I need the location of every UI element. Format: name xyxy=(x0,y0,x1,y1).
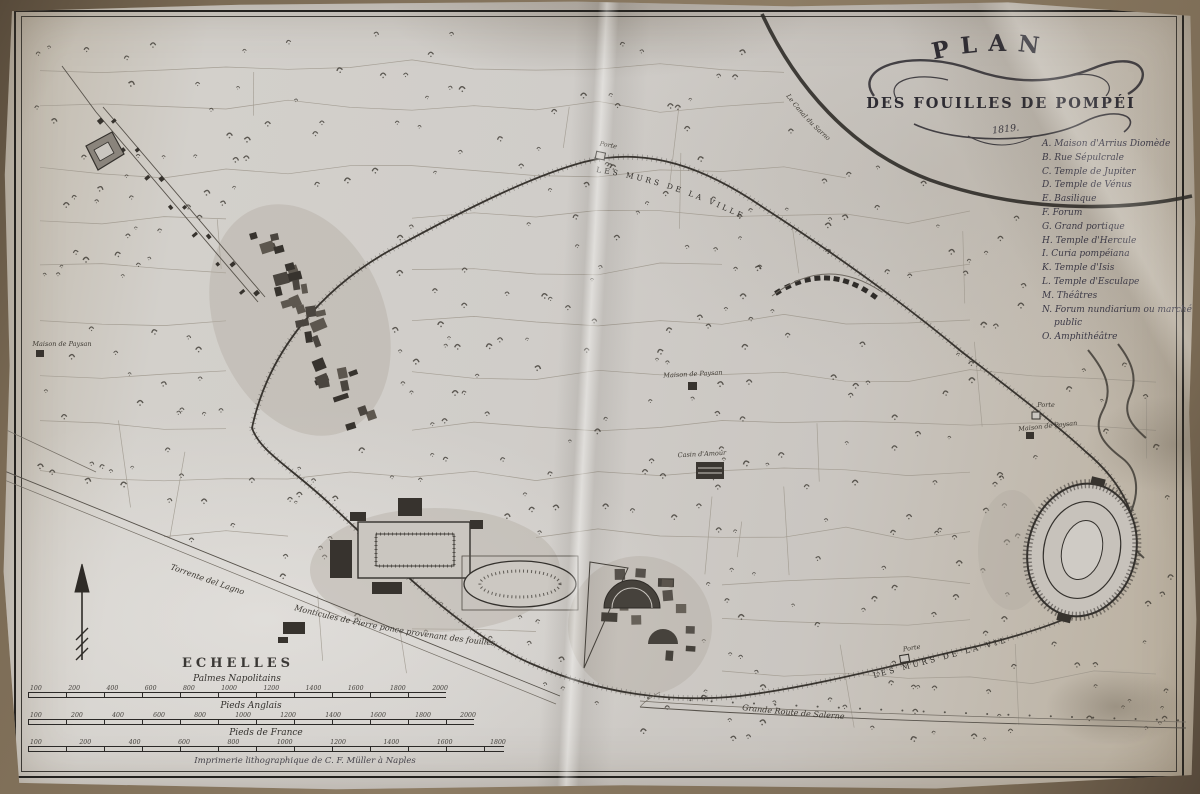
legend-item: G. Grand portique xyxy=(1042,221,1194,235)
farmhouse-label: Maison de Paysan xyxy=(662,368,723,379)
map-date: 1819. xyxy=(992,122,1020,136)
scale-pieds-france: Pieds de France 100200400600800100012001… xyxy=(28,728,504,752)
city-gate xyxy=(595,151,605,160)
legend-item: A. Maison d'Arrius Diomède xyxy=(1042,138,1194,152)
svg-text:Torrente del Lagno: Torrente del Lagno xyxy=(169,562,245,596)
city-gate xyxy=(1032,412,1040,419)
map-subtitle: DES FOUILLES DE POMPÉI xyxy=(866,94,1135,112)
legend-item: K. Temple d'Isis xyxy=(1042,262,1194,276)
scale-tick-values: 100200400600800100012001400160018002000 xyxy=(28,712,478,719)
scale-bar xyxy=(28,746,504,752)
legend-item: C. Temple de Jupiter xyxy=(1042,166,1194,180)
legend-item: O. Amphithéâtre xyxy=(1042,331,1194,345)
photographed-map: LES MURS DE LA VILLE LES MURS DE LA VILL… xyxy=(0,0,1200,794)
paper-sheet: LES MURS DE LA VILLE LES MURS DE LA VILL… xyxy=(0,0,1200,794)
scale-label: Pieds Anglais xyxy=(28,701,474,711)
scale-pieds-anglais: Pieds Anglais 10020040060080010001200140… xyxy=(28,701,474,725)
scale-bar xyxy=(28,719,474,725)
torrente-label: Torrente del Lagno xyxy=(169,562,245,596)
legend-list: A. Maison d'Arrius Diomède B. Rue Sépulc… xyxy=(1042,138,1194,345)
scale-bars: ECHELLES Palmes Napolitains 100200400600… xyxy=(28,656,508,752)
casin-label: Casin d'Amour xyxy=(677,449,727,460)
map-title: PLAN xyxy=(929,30,1051,65)
legend-item: F. Forum xyxy=(1042,207,1194,221)
canal-label: Le Canal du Sarno xyxy=(784,92,832,143)
title-cartouche: PLAN DES FOUILLES DE POMPÉI 1819. xyxy=(856,16,1146,156)
svg-text:Grande Route de Salerne: Grande Route de Salerne xyxy=(742,703,845,721)
scale-tick-values: 10020040060080010001200140016001800 xyxy=(28,739,508,746)
farmhouse-label: Maison de Paysan xyxy=(31,340,91,348)
city-gate xyxy=(900,654,910,662)
scale-tick-values: 100200400600800100012001400160018002000 xyxy=(28,685,450,692)
legend-item: M. Théâtres xyxy=(1042,290,1194,304)
legend-item: L. Temple d'Esculape xyxy=(1042,276,1194,290)
roadside-trees xyxy=(647,697,1179,721)
scale-bar xyxy=(28,692,446,698)
gate-label: Porte xyxy=(598,139,618,150)
route-salerne-label: Grande Route de Salerne xyxy=(742,703,845,721)
legend-item: B. Rue Sépulcrale xyxy=(1042,152,1194,166)
scale-label: Pieds de France xyxy=(28,728,504,738)
scale-palmes: Palmes Napolitains 100200400600800100012… xyxy=(28,674,446,698)
gate-label: Porte xyxy=(1036,401,1055,409)
svg-text:Le Canal du Sarno: Le Canal du Sarno xyxy=(784,92,832,143)
compass-north-arrow xyxy=(75,564,89,660)
legend-item: D. Temple de Vénus xyxy=(1042,179,1194,193)
amphitheatre xyxy=(1012,465,1153,635)
scale-label: Palmes Napolitains xyxy=(28,674,446,684)
legend-item: I. Curia pompéiana xyxy=(1042,248,1194,262)
scales-heading: ECHELLES xyxy=(28,656,448,671)
printer-imprint: Imprimerie lithographique de C. F. Mülle… xyxy=(95,756,515,766)
svg-text:PLAN: PLAN xyxy=(929,30,1051,65)
legend-item: H. Temple d'Hercule xyxy=(1042,235,1194,249)
gate-label: Porte xyxy=(901,643,921,654)
legend-item: N. Forum nundiarium ou marché public xyxy=(1042,304,1194,332)
farmhouse-label: Maison de Paysan xyxy=(1017,419,1078,433)
legend-item: E. Basilique xyxy=(1042,193,1194,207)
